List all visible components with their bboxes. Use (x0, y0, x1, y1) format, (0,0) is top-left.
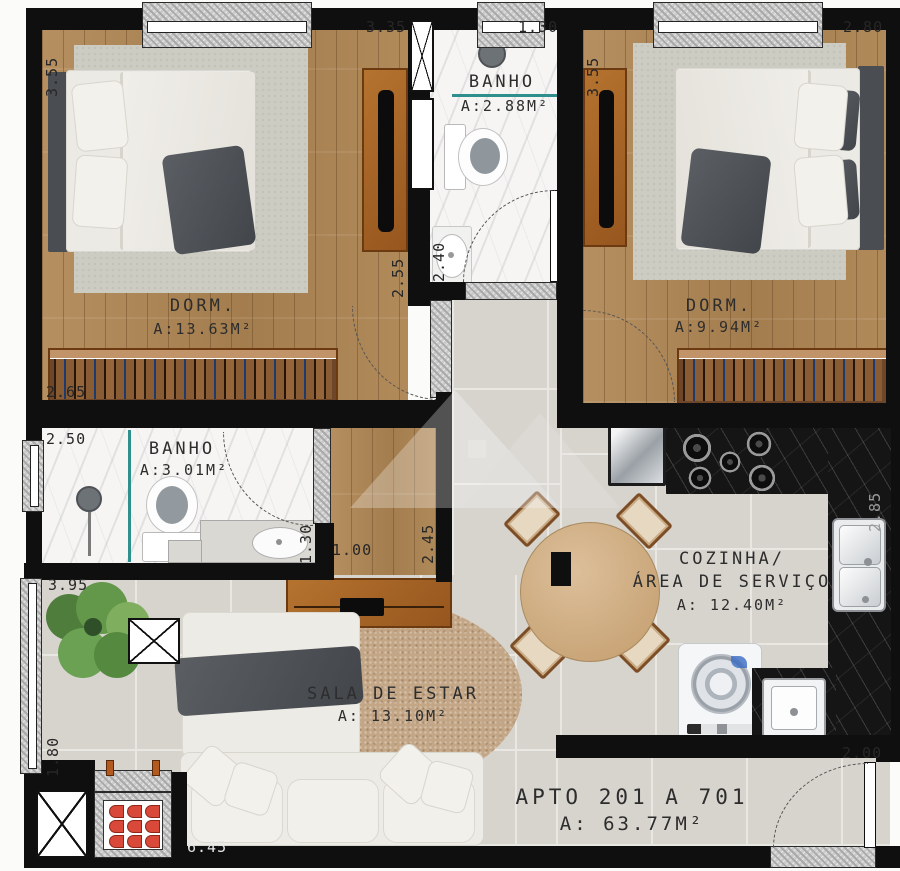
coal-icon (109, 805, 124, 818)
dim-banho1-width: 1.30 (518, 20, 558, 35)
dorm2-wardrobe (677, 348, 888, 405)
cozinha-label-1: COZINHA/ (679, 551, 785, 568)
burner-icon (748, 464, 776, 492)
window (653, 2, 823, 48)
apartment-area: A: 63.77M² (560, 815, 704, 834)
sofa-cushion (287, 779, 379, 843)
coal-icon (127, 835, 142, 848)
window-glass (30, 445, 39, 507)
sala-area: A: 13.10M² (338, 709, 448, 724)
apartment-title: APTO 201 A 701 (515, 787, 748, 808)
banho1-area: A:2.88M² (461, 99, 549, 114)
window-glass (147, 21, 307, 33)
shaft-duct (128, 618, 180, 664)
dim-hall-depth: 2.45 (421, 524, 436, 564)
dorm2-pillow (793, 154, 849, 228)
window (22, 440, 44, 512)
dim-varanda-height: 3.95 (48, 578, 88, 593)
dim-dorm1-height: 3.55 (45, 57, 60, 97)
wall-right-kitchen (891, 428, 900, 738)
coal-icon (127, 820, 142, 833)
banho2-label: BANHO (149, 441, 215, 458)
window-glass (658, 21, 818, 33)
banho2-shower-glass (128, 430, 131, 562)
banho1-label: BANHO (469, 74, 535, 91)
coal-icon (109, 835, 124, 848)
shaft-duct (36, 790, 88, 858)
dim-dorm1-width: 3.35 (366, 20, 406, 35)
wardrobe-clothes (54, 359, 332, 399)
wall-right-upper (886, 8, 900, 428)
wall-bottom-right-corner (876, 846, 900, 868)
coal-icon (145, 805, 160, 818)
window (20, 578, 42, 774)
hall-floor (452, 290, 560, 580)
burner-icon (719, 451, 741, 473)
dorm2-area: A:9.94M² (675, 320, 763, 335)
plant-center (84, 618, 102, 636)
dorm2-label: DORM. (686, 298, 752, 315)
tv-icon (378, 90, 394, 232)
banho2-sink-drain (276, 539, 282, 545)
wall-dorm2-bottom (583, 403, 900, 428)
dim-dorm1-door-side: 2.55 (391, 258, 406, 298)
washer-blue-accent (731, 656, 747, 668)
washer-controls (687, 724, 755, 734)
window (142, 2, 312, 48)
wall-banho1-threshold-stub (408, 282, 465, 300)
dim-banho1-depth: 2.40 (432, 242, 447, 282)
duct-box (410, 98, 434, 190)
banho2-toilet-seat (156, 486, 188, 524)
dim-sala-width: 6.45 (187, 840, 227, 855)
kitchen-sink (832, 518, 886, 612)
dorm1-throw-blanket (161, 145, 256, 255)
dorm1-pillow (72, 154, 129, 229)
dorm2-throw-blanket (680, 147, 771, 254)
shower-stem (88, 512, 91, 556)
dorm1-tv-panel (362, 68, 408, 252)
dim-banho2-width: 2.50 (46, 432, 86, 447)
faucet-icon (862, 596, 869, 603)
sink-basin (839, 567, 881, 607)
dorm1-pillow (71, 79, 130, 152)
banho1-toilet-seat (470, 138, 500, 174)
dim-dorm2-height: 3.55 (586, 57, 601, 97)
dim-wardrobe1-width: 2.65 (46, 385, 86, 400)
window-glass (28, 583, 37, 769)
banho2-area: A:3.01M² (140, 463, 228, 478)
dining-table (520, 522, 660, 662)
wardrobe-shelf (50, 350, 336, 359)
banho1-threshold (465, 282, 557, 300)
wall-banho1-dorm2 (557, 8, 583, 428)
coal-icon (145, 820, 160, 833)
dim-entry-door: 2.00 (842, 746, 882, 761)
dorm1-area: A:13.63M² (153, 322, 252, 337)
banho2-counter-step (168, 540, 202, 563)
cozinha-label-2: ÁREA DE SERVIÇO (633, 574, 832, 591)
fridge (608, 424, 666, 486)
grill-hook (152, 760, 160, 776)
burner-icon (688, 466, 712, 490)
dorm1-wardrobe (48, 348, 338, 402)
shaft-duct (410, 20, 434, 92)
banho1-sink-drain (448, 252, 454, 258)
faucet-icon (790, 708, 798, 716)
dorm1-headboard (48, 72, 68, 252)
sala-label: SALA DE ESTAR (307, 686, 479, 703)
wall-dorm1-bottom (26, 400, 452, 428)
dorm1-label: DORM. (170, 298, 236, 315)
dim-banho2-niche: 1.30 (299, 524, 314, 564)
dim-varanda-lower: 1.80 (46, 737, 61, 777)
wall-hall-stub (551, 552, 571, 586)
shower-head-icon (76, 486, 102, 512)
laundry-sink (762, 678, 826, 738)
cozinha-area: A: 12.40M² (677, 598, 787, 613)
dorm2-headboard (858, 66, 884, 250)
dim-hall-width: 1.00 (332, 543, 372, 558)
burner-icon (746, 431, 772, 457)
entry-threshold (770, 846, 876, 868)
faucet-icon (864, 558, 872, 566)
dorm2-pillow (793, 82, 849, 152)
burner-icon (682, 433, 712, 463)
coal-icon (145, 835, 160, 848)
wardrobe-clothes (683, 359, 882, 401)
grill-hook (106, 760, 114, 776)
dim-cozinha-depth: 2.85 (868, 492, 883, 532)
washing-machine (678, 643, 762, 742)
barbecue-grill (94, 792, 172, 858)
banho2-door-leaf (313, 428, 331, 524)
coal-icon (109, 820, 124, 833)
dim-dorm2-width: 2.80 (843, 20, 883, 35)
wall-hall-west (436, 392, 452, 582)
floor-plan: BANHO A:2.88M² DORM. A:13.63M² DORM. A:9… (0, 0, 900, 871)
wardrobe-shelf (679, 350, 886, 359)
coal-icon (127, 805, 142, 818)
tv-icon (599, 90, 614, 228)
